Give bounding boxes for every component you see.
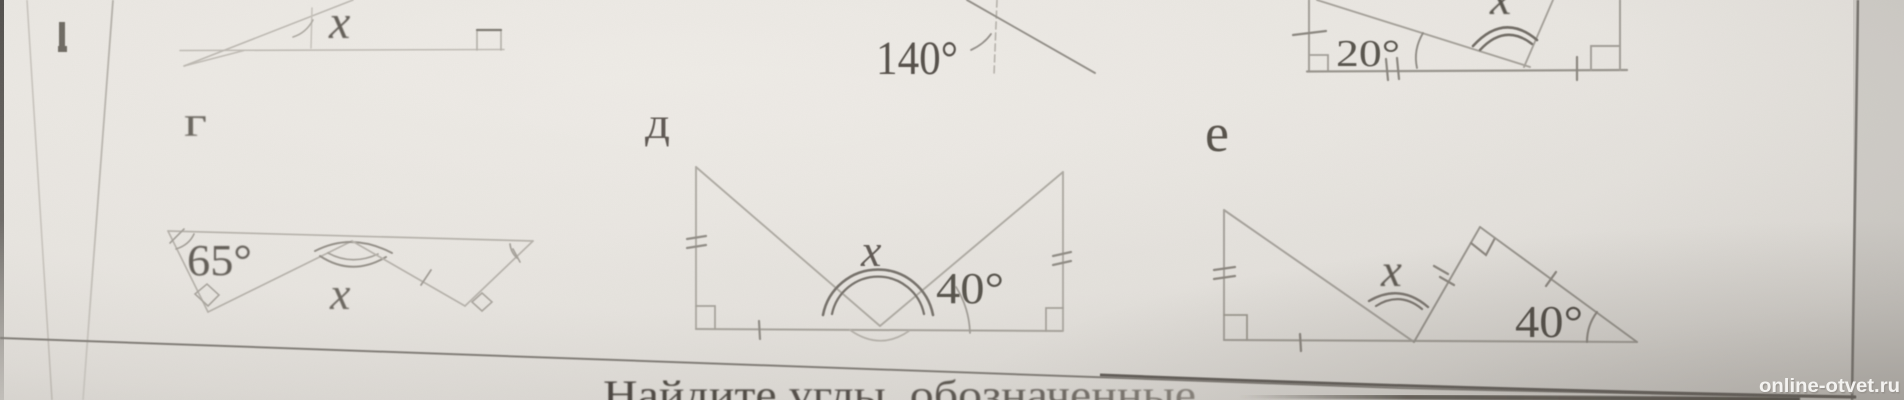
- svg-text:online-otvet.ru: online-otvet.ru: [1759, 375, 1900, 397]
